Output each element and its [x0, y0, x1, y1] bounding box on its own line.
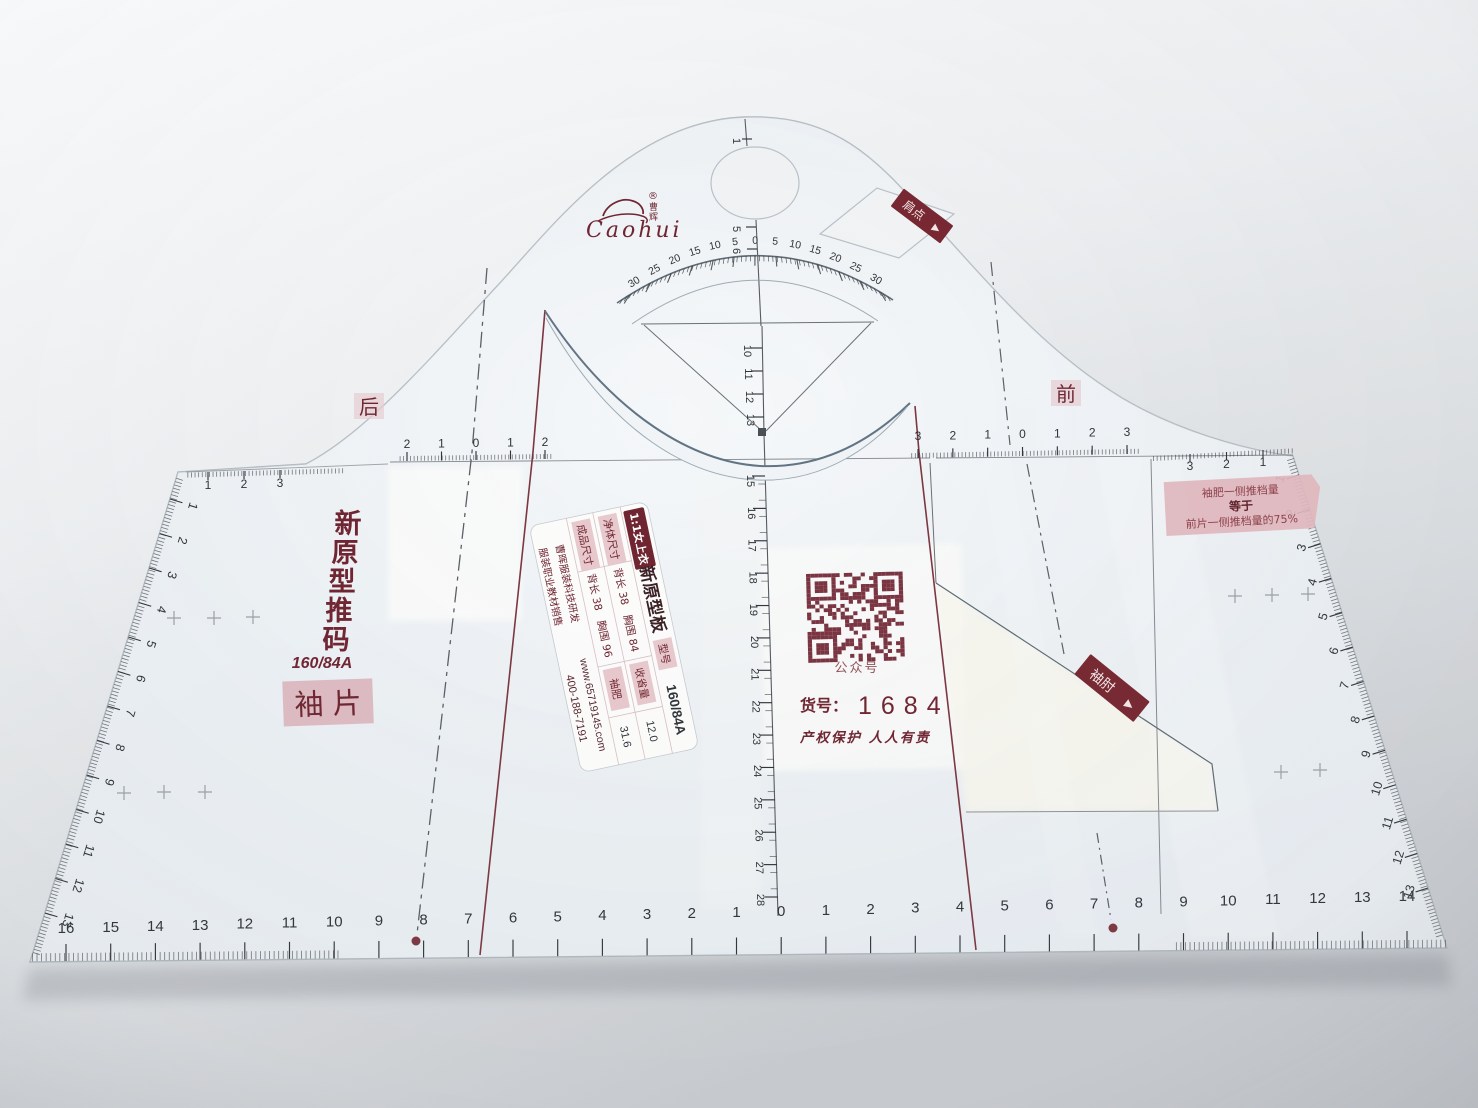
pattern-ruler-scene: 30252015105051015202530 1615141312111098… [0, 0, 1478, 1108]
photo-of-sleeve-pattern-ruler: 30252015105051015202530 1615141312111098… [0, 0, 1478, 1108]
vignette-overlay [0, 0, 1478, 1108]
